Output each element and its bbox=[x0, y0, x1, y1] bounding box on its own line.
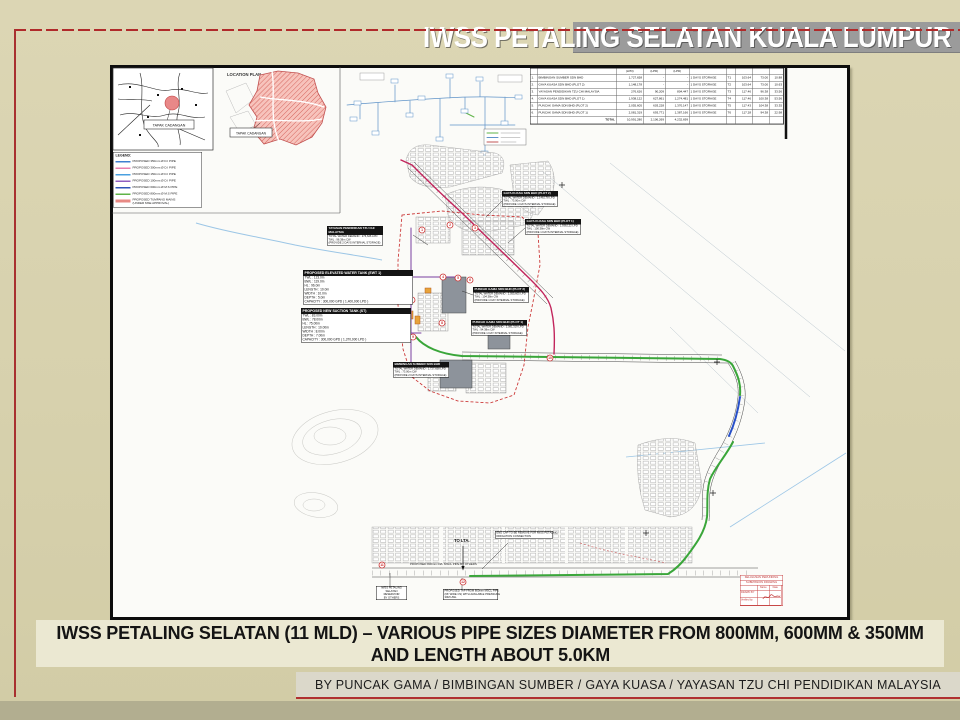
site-map: TAPAK CADANGAN LOCATION PLAN TAPAK CADAN… bbox=[110, 65, 850, 620]
location-plan-title: LOCATION PLAN bbox=[227, 72, 261, 77]
svg-text:11: 11 bbox=[380, 563, 384, 567]
bottom-strip bbox=[0, 701, 960, 720]
legend-swatch bbox=[116, 194, 131, 195]
note-elevated-water-tank: PROPOSED ELEVATED WATER TANK (EWT 1) TWL… bbox=[303, 270, 413, 305]
legend-swatch bbox=[116, 161, 131, 162]
legend-title: LEGEND: bbox=[116, 154, 200, 158]
svg-text:5: 5 bbox=[457, 276, 459, 280]
svg-text:10: 10 bbox=[548, 356, 552, 360]
approval-title-block: KELULUSAN PERUNDING SUBMISSION DRAWING N… bbox=[740, 575, 783, 606]
water-demand-table: (LPD)(LPD)(LPD) 1.BIMBINGAN SUMBER SDN B… bbox=[530, 68, 784, 125]
site-highlight-circle bbox=[165, 96, 179, 110]
svg-text:3: 3 bbox=[474, 226, 476, 230]
note-tap-connection: PROPOSED TAP FROM 800mm MSCL PIPE (66' W… bbox=[443, 589, 498, 600]
note-end-cap: END CAP TO BE REMOVE FOR IWSS PETALING I… bbox=[495, 531, 553, 539]
note-bimbingan: BIMBINGAN SUMBER SDN BHD TOTAL WATER DEM… bbox=[393, 362, 449, 378]
legend-swatch bbox=[116, 181, 131, 182]
legend-swatch bbox=[116, 168, 131, 169]
svg-text:4: 4 bbox=[442, 275, 444, 279]
note-suction-tank: PROPOSED NEW SUCTION TANK (ST) TWL : 83.… bbox=[301, 308, 411, 343]
signature-scribble bbox=[762, 591, 782, 604]
note-gaya-plot2: GAYA KUASA SDN BHD (PLOT 2) TOTAL WATER … bbox=[502, 191, 558, 207]
engineering-drawing-sheet: TAPAK CADANGAN LOCATION PLAN TAPAK CADAN… bbox=[110, 65, 850, 620]
legend-swatch bbox=[116, 187, 131, 188]
red-dashed-rule bbox=[14, 29, 960, 31]
location-plan-site-label: TAPAK CADANGAN bbox=[236, 132, 267, 136]
title-bar: IWSS PETALING SELATAN KUALA LUMPUR bbox=[573, 22, 960, 53]
note-reservoir: IWSS PETALING SELATAN RESERVOIR BY OTHER… bbox=[376, 586, 407, 600]
svg-text:2: 2 bbox=[449, 223, 451, 227]
legend-swatch bbox=[116, 174, 131, 175]
slide: IWSS PETALING SELATAN KUALA LUMPUR bbox=[0, 0, 960, 720]
caption-line2: AND LENGTH ABOUT 5.0KM bbox=[370, 644, 609, 666]
key-plan: TAPAK CADANGAN bbox=[113, 68, 213, 150]
key-plan-site-label: TAPAK CADANGAN bbox=[153, 124, 186, 128]
schematic-legend bbox=[484, 129, 526, 145]
to-lta-label: TO LTA. bbox=[454, 538, 470, 543]
legend-item: PROPOSED TUMPANG MAINS(UNDER MSE APPROVA… bbox=[116, 198, 200, 206]
legend-swatch bbox=[116, 200, 131, 203]
red-left-rule bbox=[14, 29, 16, 697]
along-road-label: PROPOSED 800mm DIA. MSCL PIPE BY OTHERS bbox=[410, 562, 477, 566]
credits-bar: BY PUNCAK GAMA / BIMBINGAN SUMBER / GAYA… bbox=[296, 672, 960, 699]
svg-text:1: 1 bbox=[421, 228, 423, 232]
svg-text:8: 8 bbox=[441, 321, 443, 325]
credits-text: BY PUNCAK GAMA / BIMBINGAN SUMBER / GAYA… bbox=[315, 678, 941, 692]
note-gaya-plot1: GAYA KUASA SDN BHD (PLOT 1) TOTAL WATER … bbox=[525, 219, 581, 235]
note-puncak-plot2: PUNCAK GAMA SDN BHD (PLOT 2) TOTAL WATER… bbox=[473, 287, 529, 303]
note-puncak-plot1: PUNCAK GAMA SDN BHD (PLOT 1) TOTAL WATER… bbox=[471, 320, 527, 336]
note-tzu-chi: YAYASAN PENDIDIKAN TZU CHI MALAYSIA TOTA… bbox=[327, 226, 383, 245]
legend: LEGEND: PROPOSED 350mm Ø D.I PIPE PROPOS… bbox=[113, 152, 202, 208]
svg-text:6: 6 bbox=[469, 278, 471, 282]
caption-line1: IWSS PETALING SELATAN (11 MLD) – VARIOUS… bbox=[56, 622, 923, 644]
svg-text:9: 9 bbox=[412, 335, 414, 339]
slide-title: IWSS PETALING SELATAN KUALA LUMPUR bbox=[423, 20, 951, 55]
svg-text:12: 12 bbox=[461, 580, 465, 584]
caption-panel: IWSS PETALING SELATAN (11 MLD) – VARIOUS… bbox=[36, 620, 944, 667]
